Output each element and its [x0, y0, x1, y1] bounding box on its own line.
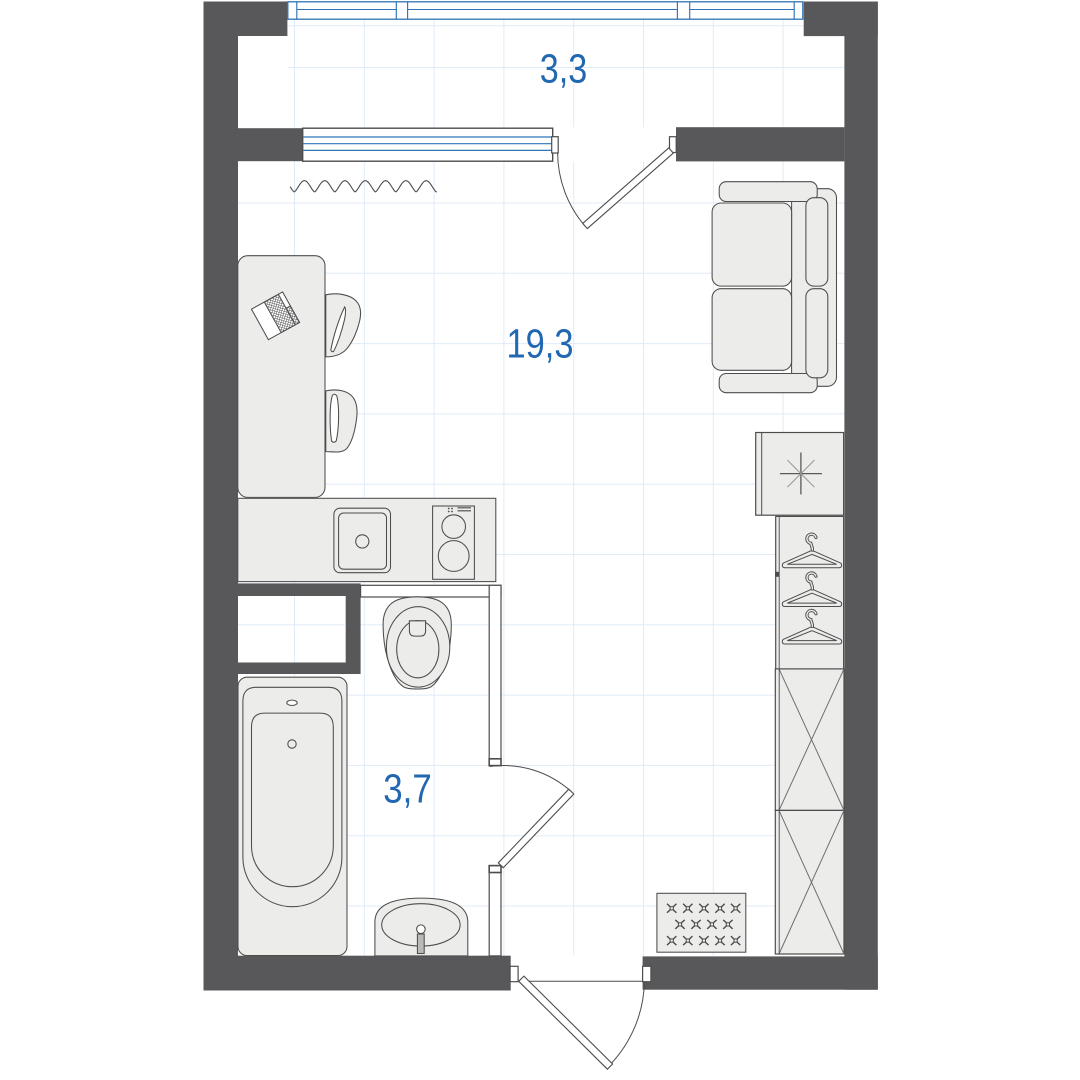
svg-text:19,3: 19,3 — [507, 321, 574, 367]
svg-text:3,7: 3,7 — [383, 766, 432, 812]
svg-text:3,3: 3,3 — [540, 45, 588, 91]
